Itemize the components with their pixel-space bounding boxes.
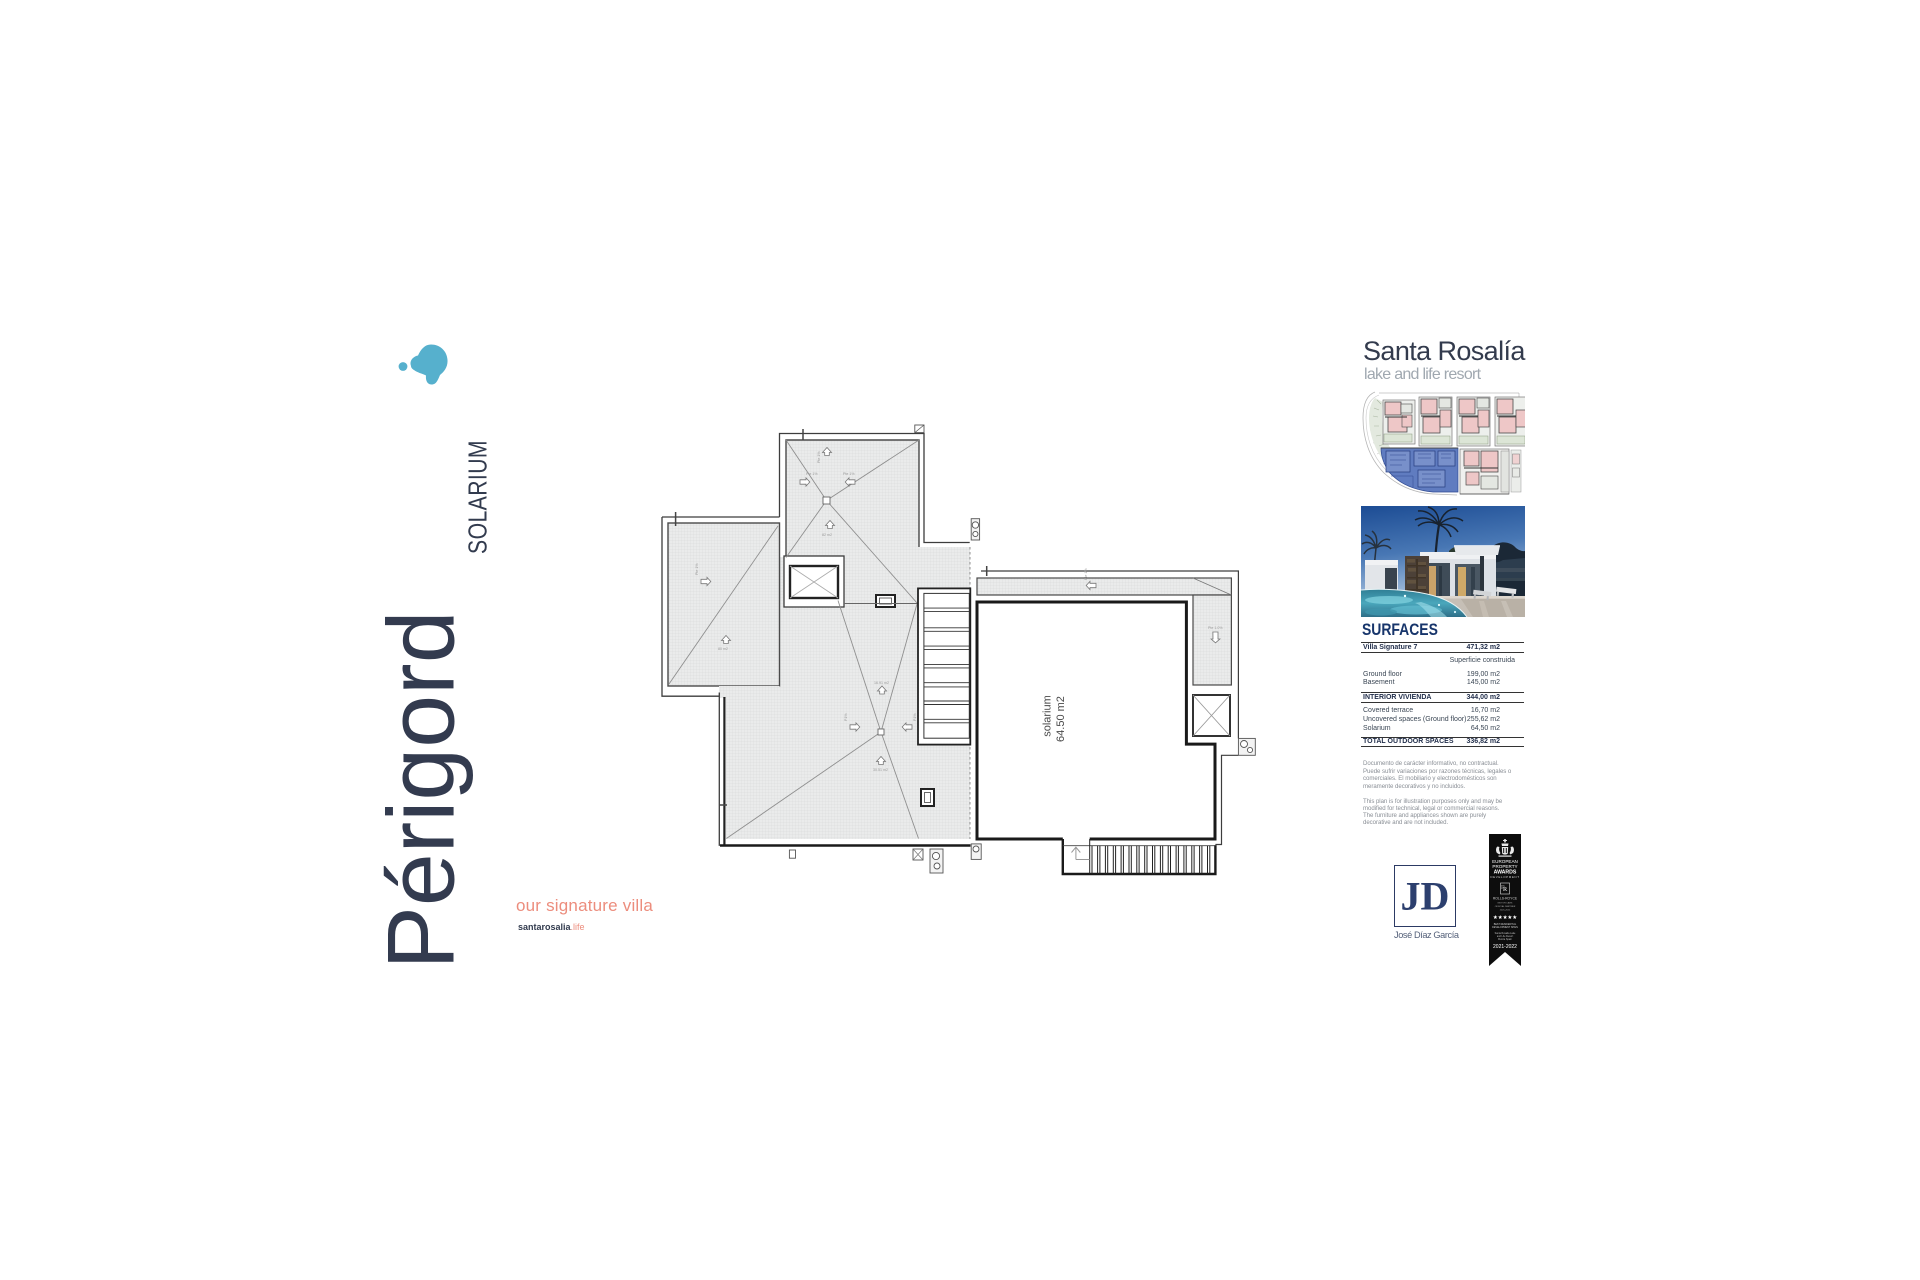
svg-text:Pte 1%: Pte 1% <box>817 451 821 463</box>
svg-text:Pte 1%: Pte 1% <box>695 563 699 575</box>
svg-text:OFFICIAL PARTNER: OFFICIAL PARTNER <box>1495 905 1516 908</box>
svg-text:ROLLS-ROYCE: ROLLS-ROYCE <box>1493 897 1518 901</box>
svg-text:P1%: P1% <box>913 713 917 721</box>
svg-text:★★★★★: ★★★★★ <box>1493 915 1517 921</box>
svg-text:2021-2022: 2021-2022 <box>1500 910 1511 912</box>
svg-text:82 m2: 82 m2 <box>822 533 832 537</box>
svg-text:solarium: solarium <box>1042 695 1054 737</box>
svg-text:P1%: P1% <box>844 713 848 721</box>
svg-text:80 m2: 80 m2 <box>718 647 728 651</box>
svg-text:R: R <box>1501 884 1506 891</box>
svg-text:PROPERTY: PROPERTY <box>1492 864 1517 869</box>
svg-text:64.50 m2: 64.50 m2 <box>1055 696 1067 742</box>
svg-text:DEVELOPMENT SPAIN: DEVELOPMENT SPAIN <box>1492 926 1518 929</box>
svg-text:Pte 1%: Pte 1% <box>1084 568 1088 580</box>
svg-text:16.91 m2: 16.91 m2 <box>874 681 889 685</box>
svg-text:MOTOR CARS: MOTOR CARS <box>1498 902 1513 905</box>
svg-text:Pte 1%: Pte 1% <box>806 472 818 476</box>
svg-text:Pte 1.0%: Pte 1.0% <box>1208 626 1223 630</box>
svg-text:DEVELOPMENT: DEVELOPMENT <box>1490 875 1519 879</box>
svg-text:2021-2022: 2021-2022 <box>1493 944 1517 950</box>
svg-text:30.51 m2: 30.51 m2 <box>873 768 888 772</box>
svg-text:Pte 1%: Pte 1% <box>843 472 855 476</box>
svg-text:Murcia Spain: Murcia Spain <box>1498 938 1513 941</box>
